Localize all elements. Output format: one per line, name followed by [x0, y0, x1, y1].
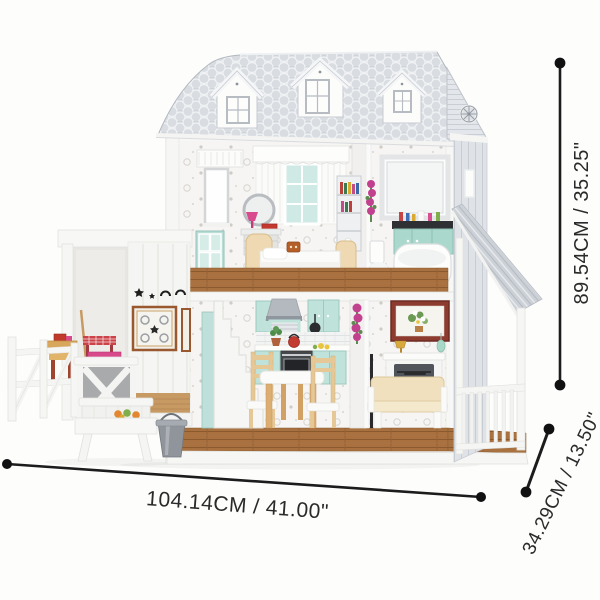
porch-post-front [517, 308, 525, 450]
height-dimension-label: 89.54CM / 35.25" [571, 142, 593, 305]
dimension-depth: 34.29CM / 13.50" [519, 409, 600, 558]
ball-green [123, 409, 131, 417]
dimension-depth-line [526, 429, 549, 492]
dollhouse-illustration: 104.14CM / 41.00" 89.54CM / 35.25" 34.29… [0, 0, 600, 600]
living-room [350, 300, 449, 428]
hanging-pan [310, 323, 321, 334]
range-hood [266, 299, 302, 321]
teal-dresser [196, 231, 224, 272]
width-dimension-label: 104.14CM / 41.00" [145, 487, 329, 524]
decor-panel [133, 307, 176, 350]
porthole-window [461, 106, 477, 122]
gable-end [447, 68, 487, 139]
depth-dimension-label: 34.29CM / 13.50" [519, 409, 600, 558]
roof [156, 52, 488, 147]
kettle [289, 335, 300, 348]
product-dimension-image: 104.14CM / 41.00" 89.54CM / 35.25" 34.29… [0, 0, 600, 600]
feeding-trough [75, 398, 157, 461]
bedroom [196, 141, 377, 284]
decor-panel-partial [182, 309, 190, 351]
bookshelf [337, 176, 361, 251]
wall-art [391, 301, 449, 341]
dimension-height: 89.54CM / 35.25" [555, 58, 593, 391]
side-window [465, 170, 474, 197]
